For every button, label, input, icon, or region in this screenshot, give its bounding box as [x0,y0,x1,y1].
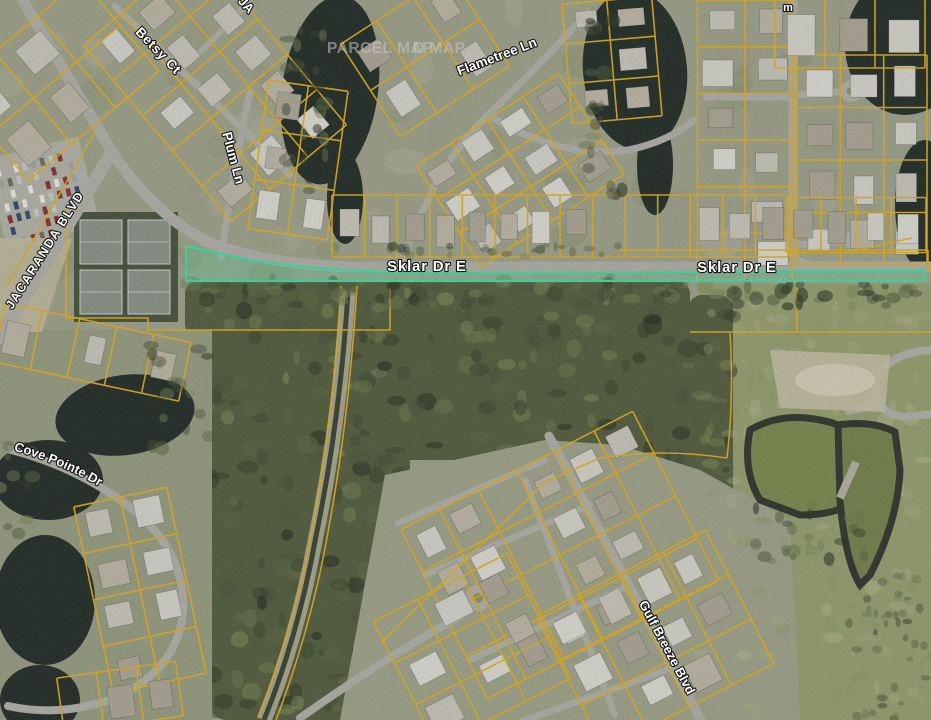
aerial-parcel-map[interactable]: PARCEL MAP D MAP Betsy Ct Plum Ln Flamet… [0,0,931,720]
street-label-partial-top-right: m [783,2,793,14]
street-label-sklar-dr-e-west: Sklar Dr E [387,258,467,275]
grain-light [0,0,931,720]
street-label-sklar-dr-e-east: Sklar Dr E [697,259,777,276]
parcel-map-canvas[interactable]: PARCEL MAP D MAP Betsy Ct Plum Ln Flamet… [0,0,931,720]
watermark-partial-map: D MAP [413,40,465,57]
